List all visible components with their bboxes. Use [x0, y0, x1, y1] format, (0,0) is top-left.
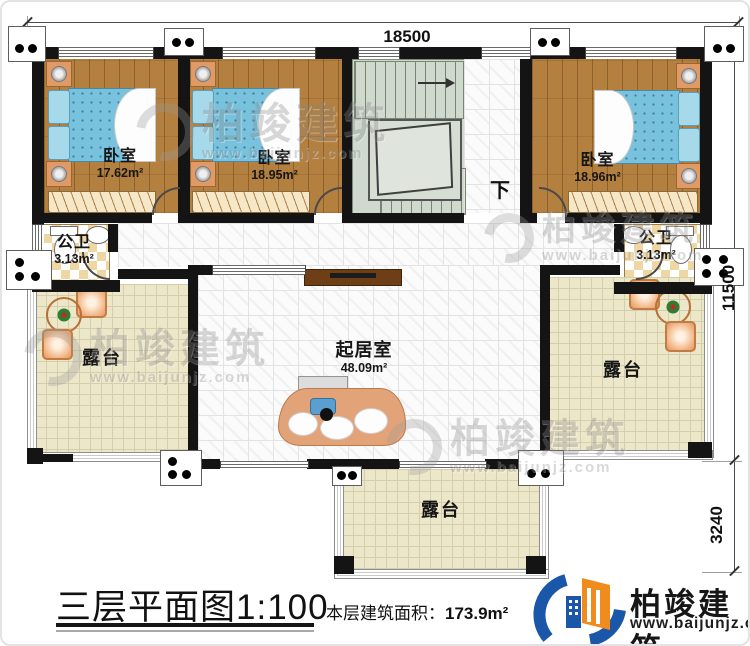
room-name: 卧室	[75, 148, 165, 166]
terrace-table-icon	[655, 289, 691, 325]
bed1-pillow	[48, 90, 70, 124]
dimension-right-upper-value: 11500	[719, 248, 739, 328]
stairs-void-outline	[375, 122, 453, 196]
wall-bedroom2-stairs	[342, 59, 352, 223]
marker-dot	[15, 44, 24, 53]
wall-bedroom1-south	[44, 213, 152, 223]
bedroom2-wardrobe	[192, 191, 310, 213]
column-marker	[160, 450, 202, 486]
window-bedroom3-north	[585, 47, 677, 59]
window-living-north	[212, 265, 306, 275]
corner-block-terrace-left-2	[27, 454, 73, 462]
wall-living-west	[188, 265, 198, 469]
wall-bedroom3-south	[565, 213, 700, 223]
wall-hall-south-east	[540, 265, 620, 275]
floor-area-label: 本层建筑面积：	[326, 604, 445, 623]
nightstand-icon	[190, 161, 216, 187]
marker-dot	[168, 470, 177, 479]
bedroom1-wardrobe	[48, 191, 156, 213]
person-head	[320, 408, 333, 421]
column-marker	[8, 26, 46, 62]
tv-icon	[330, 273, 376, 278]
nightstand-icon	[46, 161, 72, 187]
marker-dot	[15, 272, 24, 281]
stairs-down-label: 下	[490, 174, 510, 203]
marker-dot	[702, 269, 711, 278]
floor-plan-canvas: 下 卧室 17.62m²	[0, 0, 750, 646]
extension-line	[702, 461, 742, 462]
stairs-direction-line	[418, 82, 446, 84]
room-label-bedroom2: 卧室 18.95m²	[227, 150, 322, 183]
terrace-table-icon	[46, 297, 82, 333]
room-name: 卧室	[227, 150, 322, 168]
room-area: 48.09m²	[308, 361, 420, 375]
dimension-top-value: 18500	[352, 27, 462, 47]
marker-dot	[538, 38, 547, 47]
hallway-floor	[118, 223, 614, 267]
marker-dot	[185, 38, 194, 47]
room-name: 露台	[394, 500, 488, 521]
floor-area-text: 本层建筑面积：173.9m²	[326, 599, 508, 624]
room-area: 18.96m²	[550, 170, 645, 184]
bed1-pillow	[48, 126, 70, 160]
sofa-cushion	[354, 408, 388, 434]
brand-name: 柏竣建筑	[630, 579, 748, 646]
nightstand-icon	[46, 61, 72, 87]
room-label-bath-right: 公卫 3.13m²	[614, 230, 698, 263]
parapet-terrace-left-west	[27, 284, 37, 460]
stairs-direction-arrow-icon	[446, 78, 455, 88]
stairs-upper-flight	[354, 61, 464, 119]
marker-dot	[172, 38, 181, 47]
marker-dot	[702, 255, 711, 264]
dimension-right-lower-value: 3240	[707, 485, 727, 565]
room-label-bedroom3: 卧室 18.96m²	[550, 152, 645, 185]
marker-dot	[31, 272, 40, 281]
room-label-terrace-left: 露台	[62, 348, 142, 369]
column-marker	[530, 28, 570, 56]
room-label-bedroom1: 卧室 17.62m²	[75, 148, 165, 181]
wall-landing-bedroom3	[520, 59, 532, 223]
room-name: 卧室	[550, 152, 645, 170]
room-area: 3.13m²	[614, 248, 698, 262]
column-marker	[164, 28, 204, 56]
parapet-terrace-right-east	[704, 272, 714, 458]
marker-dot	[541, 469, 550, 478]
marker-dot	[15, 258, 24, 267]
room-label-living: 起居室 48.09m²	[308, 340, 420, 375]
bedroom3-wardrobe	[568, 191, 698, 213]
wall-hall-south-west	[118, 269, 198, 279]
corner-block-terrace-right	[688, 442, 712, 458]
room-label-bath-left: 公卫 3.13m²	[38, 234, 110, 267]
marker-dot	[337, 471, 346, 480]
corner-block-terrace-bottom-left	[334, 556, 354, 574]
marker-dot	[726, 44, 735, 53]
bed2-pillow	[192, 126, 214, 160]
terrace-chair-icon	[665, 321, 696, 352]
wall-living-east	[540, 265, 550, 469]
brand-url: www.baijunjz.com	[630, 615, 750, 633]
bed3-pillow	[678, 128, 700, 162]
dimension-line-right-lower	[734, 462, 735, 572]
marker-dot	[527, 469, 536, 478]
window-living-south-west	[220, 461, 309, 468]
room-name: 公卫	[614, 230, 698, 248]
marker-dot	[168, 457, 177, 466]
extension-line	[702, 572, 742, 573]
nightstand-icon	[676, 63, 702, 89]
window-stairs-north	[358, 47, 400, 59]
marker-dot	[348, 471, 357, 480]
wall-living-north-stub	[198, 265, 212, 275]
parapet-terrace-bottom-south	[334, 569, 549, 579]
window-bedroom2-north	[222, 47, 316, 59]
room-area: 3.13m²	[38, 252, 110, 266]
wall-bedroom2-south	[188, 213, 314, 223]
sofa-cushion	[288, 412, 318, 436]
bed3-pillow	[678, 92, 700, 126]
title-underline-thin	[56, 630, 314, 632]
nightstand-icon	[676, 163, 702, 189]
bed2-pillow	[192, 90, 214, 124]
room-name: 公卫	[38, 234, 110, 252]
dimension-line-top	[27, 22, 739, 23]
room-area: 17.62m²	[75, 166, 165, 180]
room-area: 18.95m²	[227, 168, 322, 182]
nightstand-icon	[190, 61, 216, 87]
floor-area-value: 173.9m²	[445, 604, 508, 623]
room-name: 起居室	[308, 340, 420, 361]
marker-dot	[713, 44, 722, 53]
brand-logo-icon	[530, 572, 630, 644]
column-marker	[332, 466, 362, 486]
room-label-terrace-right: 露台	[580, 360, 666, 381]
wall-bedroom3-south-stub	[520, 213, 537, 223]
marker-dot	[551, 38, 560, 47]
dimension-line-right-upper	[734, 32, 735, 460]
window-landing-north	[481, 47, 531, 59]
wall-stairs-south	[352, 213, 464, 223]
marker-dot	[182, 470, 191, 479]
column-marker	[518, 450, 564, 486]
room-name: 露台	[62, 348, 142, 369]
room-name: 露台	[580, 360, 666, 381]
marker-dot	[28, 44, 37, 53]
title-underline	[56, 623, 314, 627]
room-label-terrace-bottom: 露台	[394, 500, 488, 521]
column-marker	[704, 26, 744, 62]
door-living-south-sliding	[399, 461, 487, 468]
window-bedroom1-north	[58, 47, 154, 59]
